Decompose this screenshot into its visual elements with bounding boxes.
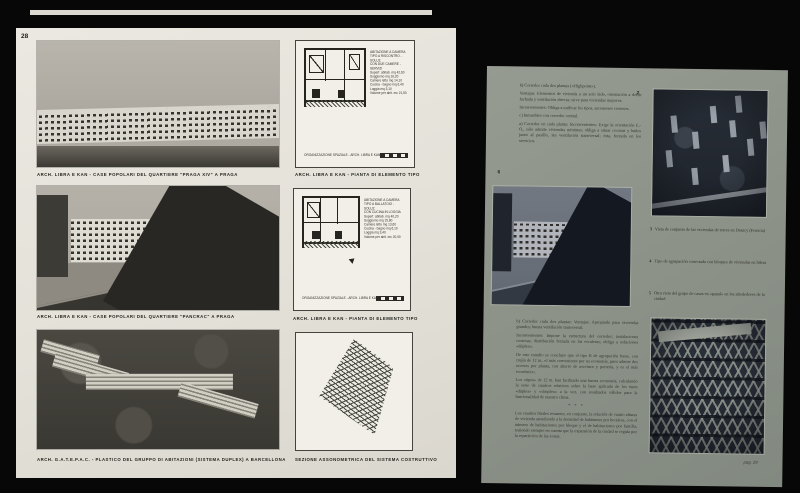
plan-footer-label: ORGANIZZAZIONE SPAZIALE - ARCH. LIBRA E … [304,153,380,157]
photo-pancrac [37,186,279,310]
figure-caption-number: 5 [649,290,651,301]
plan-service-block [312,231,320,240]
text-separator: * * * [515,402,637,409]
paragraph: Inconvenientes: Obliga a unificar los ti… [519,104,641,111]
photo-praga-xiv [37,41,279,167]
figure-caption-number: 4 [649,258,651,264]
photo-building-facade [37,103,279,143]
plan-hatch-terrace [302,241,360,248]
figure-caption-text: Vista de conjunto de las viviendas de to… [655,226,765,233]
photo-courtyard-dark [492,186,632,306]
figure-number-wrap: 2 [637,90,642,99]
plan-wall [306,79,364,80]
plan-bed [309,55,324,73]
plan-scale-bar [380,153,408,158]
photo-caption-barcelona: ARCH. G.A.T.E.P.A.C. - PLASTICO DEL GRUP… [37,457,286,462]
footer-wrap: pag. 29 [743,460,772,470]
plate-axonometric [295,332,413,451]
plate-plan-1: ABITAZIONE A CAMERA TIPO A RISCONTRO - S… [295,40,415,168]
figure-caption-text: Tipo de agrupación conectada con bloques… [654,258,766,265]
photo-barcelona-model [37,330,279,449]
page-footer: pag. 29 [743,460,757,465]
plan-scale-bar [376,296,404,301]
paragraph: Ventajas: Elementos de vivienda a un sol… [520,91,642,104]
paragraph: c) Inmuebles con corredor central. [519,113,641,120]
plate-caption-2: ARCH. LIBRA E KAN - PIANTA DI ELEMENTO T… [293,316,418,321]
plan-wall [304,222,358,223]
caption-wrap: SEZIONE ASSONOMETRICA DEL SISTEMA COSTRU… [295,457,456,467]
bottom-text-block: b) Corredor cada dos plantas: Ventajas: … [515,318,639,440]
plan-wall [337,198,338,224]
photo-window-rows [37,105,279,141]
figure-caption-5: 5 Otra vista del grupo de casas en «pana… [649,290,775,303]
figure-number-6: 6 [497,169,500,174]
photo-ground [37,146,279,167]
photo-towers-aerial [652,89,768,217]
photo-vignette [650,318,766,454]
plan-spec-wrap: ABITAZIONE A CAMERA TIPO A RISCONTRO - S… [370,50,415,157]
plan-north-arrow [349,256,357,264]
plate-caption-3: SEZIONE ASSONOMETRICA DEL SISTEMA COSTRU… [295,457,437,462]
figure-caption-number: 3 [650,226,652,232]
plan-outline [302,196,360,244]
plan-wall [320,198,321,242]
right-magazine-page: b) Corredor cada dos plantas («Highpoint… [481,66,788,487]
plan-bed [307,202,320,218]
caption-wrap: 5 Otra vista del grupo de casas en «pana… [649,290,788,316]
caption-wrap: 3 Vista de conjunto de las viviendas de … [650,226,788,241]
caption-wrap: ARCH. LIBRA E KAN - PIANTA DI ELEMENTO T… [293,316,456,326]
plan-service-block [312,89,320,98]
paragraph: b) Corredor cada dos plantas: Ventajas: … [516,318,638,331]
axonometric-drawing [315,339,394,435]
plan-wall [325,50,326,81]
plate-plan-2: ABITAZIONE A CAMERA TIPO A BALLATOIO - S… [293,188,411,311]
paragraph: Los cuadros finales resumen, en conjunto… [515,410,637,440]
plan-spec-table: ABITAZIONE A CAMERA TIPO A RISCONTRO - S… [370,50,412,95]
photo-model-blocks [40,330,276,449]
figure-number-2: 2 [637,90,640,95]
photo-vignette [652,89,768,217]
model-block [86,374,233,390]
paragraph: b) Corredor cada dos plantas («Highpoint… [520,82,642,89]
paragraph: Los «tipos» de 12 m. han facilitado una … [515,377,637,401]
photo-honeycomb-aerial [650,318,766,454]
paragraph: a) Corredor en cada planta: Inconvenient… [519,121,641,145]
plate-caption-1: ARCH. LIBRA E KAN - PIANTA DI ELEMENTO T… [295,172,420,177]
photo-caption-pancrac: ARCH. LIBRA E KAN - CASE POPOLARI DEL QU… [37,314,235,319]
paragraph: De este estudio se concluye que el tipo … [516,352,638,376]
plan-spec-table: ABITAZIONE A CAMERA TIPO A BALLATOIO - S… [364,198,406,239]
page-number: 28 [21,32,28,39]
figure-caption-3: 3 Vista de conjunto de las viviendas de … [650,226,776,233]
photo-dark-building [37,195,68,277]
plan-service-block [338,90,345,98]
plan-spec-wrap: ABITAZIONE A CAMERA TIPO A BALLATOIO - S… [364,198,411,296]
plan-hatch-terrace [304,100,366,107]
plan-outline [304,48,366,102]
figure-number-wrap: 6 [497,169,502,178]
figure-caption-text: Otra vista del grupo de casas en «panal»… [654,290,775,303]
caption-wrap: 4 Tipo de agrupación conectada con bloqu… [649,258,788,273]
photo-tint-overlay [492,186,632,306]
plan-bed [349,54,360,70]
plan-footer-label: ORGANIZZAZIONE SPAZIALE - ARCH. LIBRA E … [302,296,378,300]
figure-caption-4: 4 Tipo de agrupación conectada con bloqu… [649,258,775,265]
top-text-block: b) Corredor cada dos plantas («Highpoint… [519,82,642,145]
page-edge-strip [30,10,432,15]
plan-service-block [335,231,342,239]
left-magazine-page: 28 ARCH. LIBRA E KAN - CASE POPOLARI DEL… [16,28,456,478]
caption-wrap: ARCH. LIBRA E KAN - PIANTA DI ELEMENTO T… [295,172,456,182]
paragraph: Inconvenientes: Impone la estructura del… [516,332,638,351]
photo-caption-praga-xiv: ARCH. LIBRA E KAN - CASE POPOLARI DEL QU… [37,172,238,177]
